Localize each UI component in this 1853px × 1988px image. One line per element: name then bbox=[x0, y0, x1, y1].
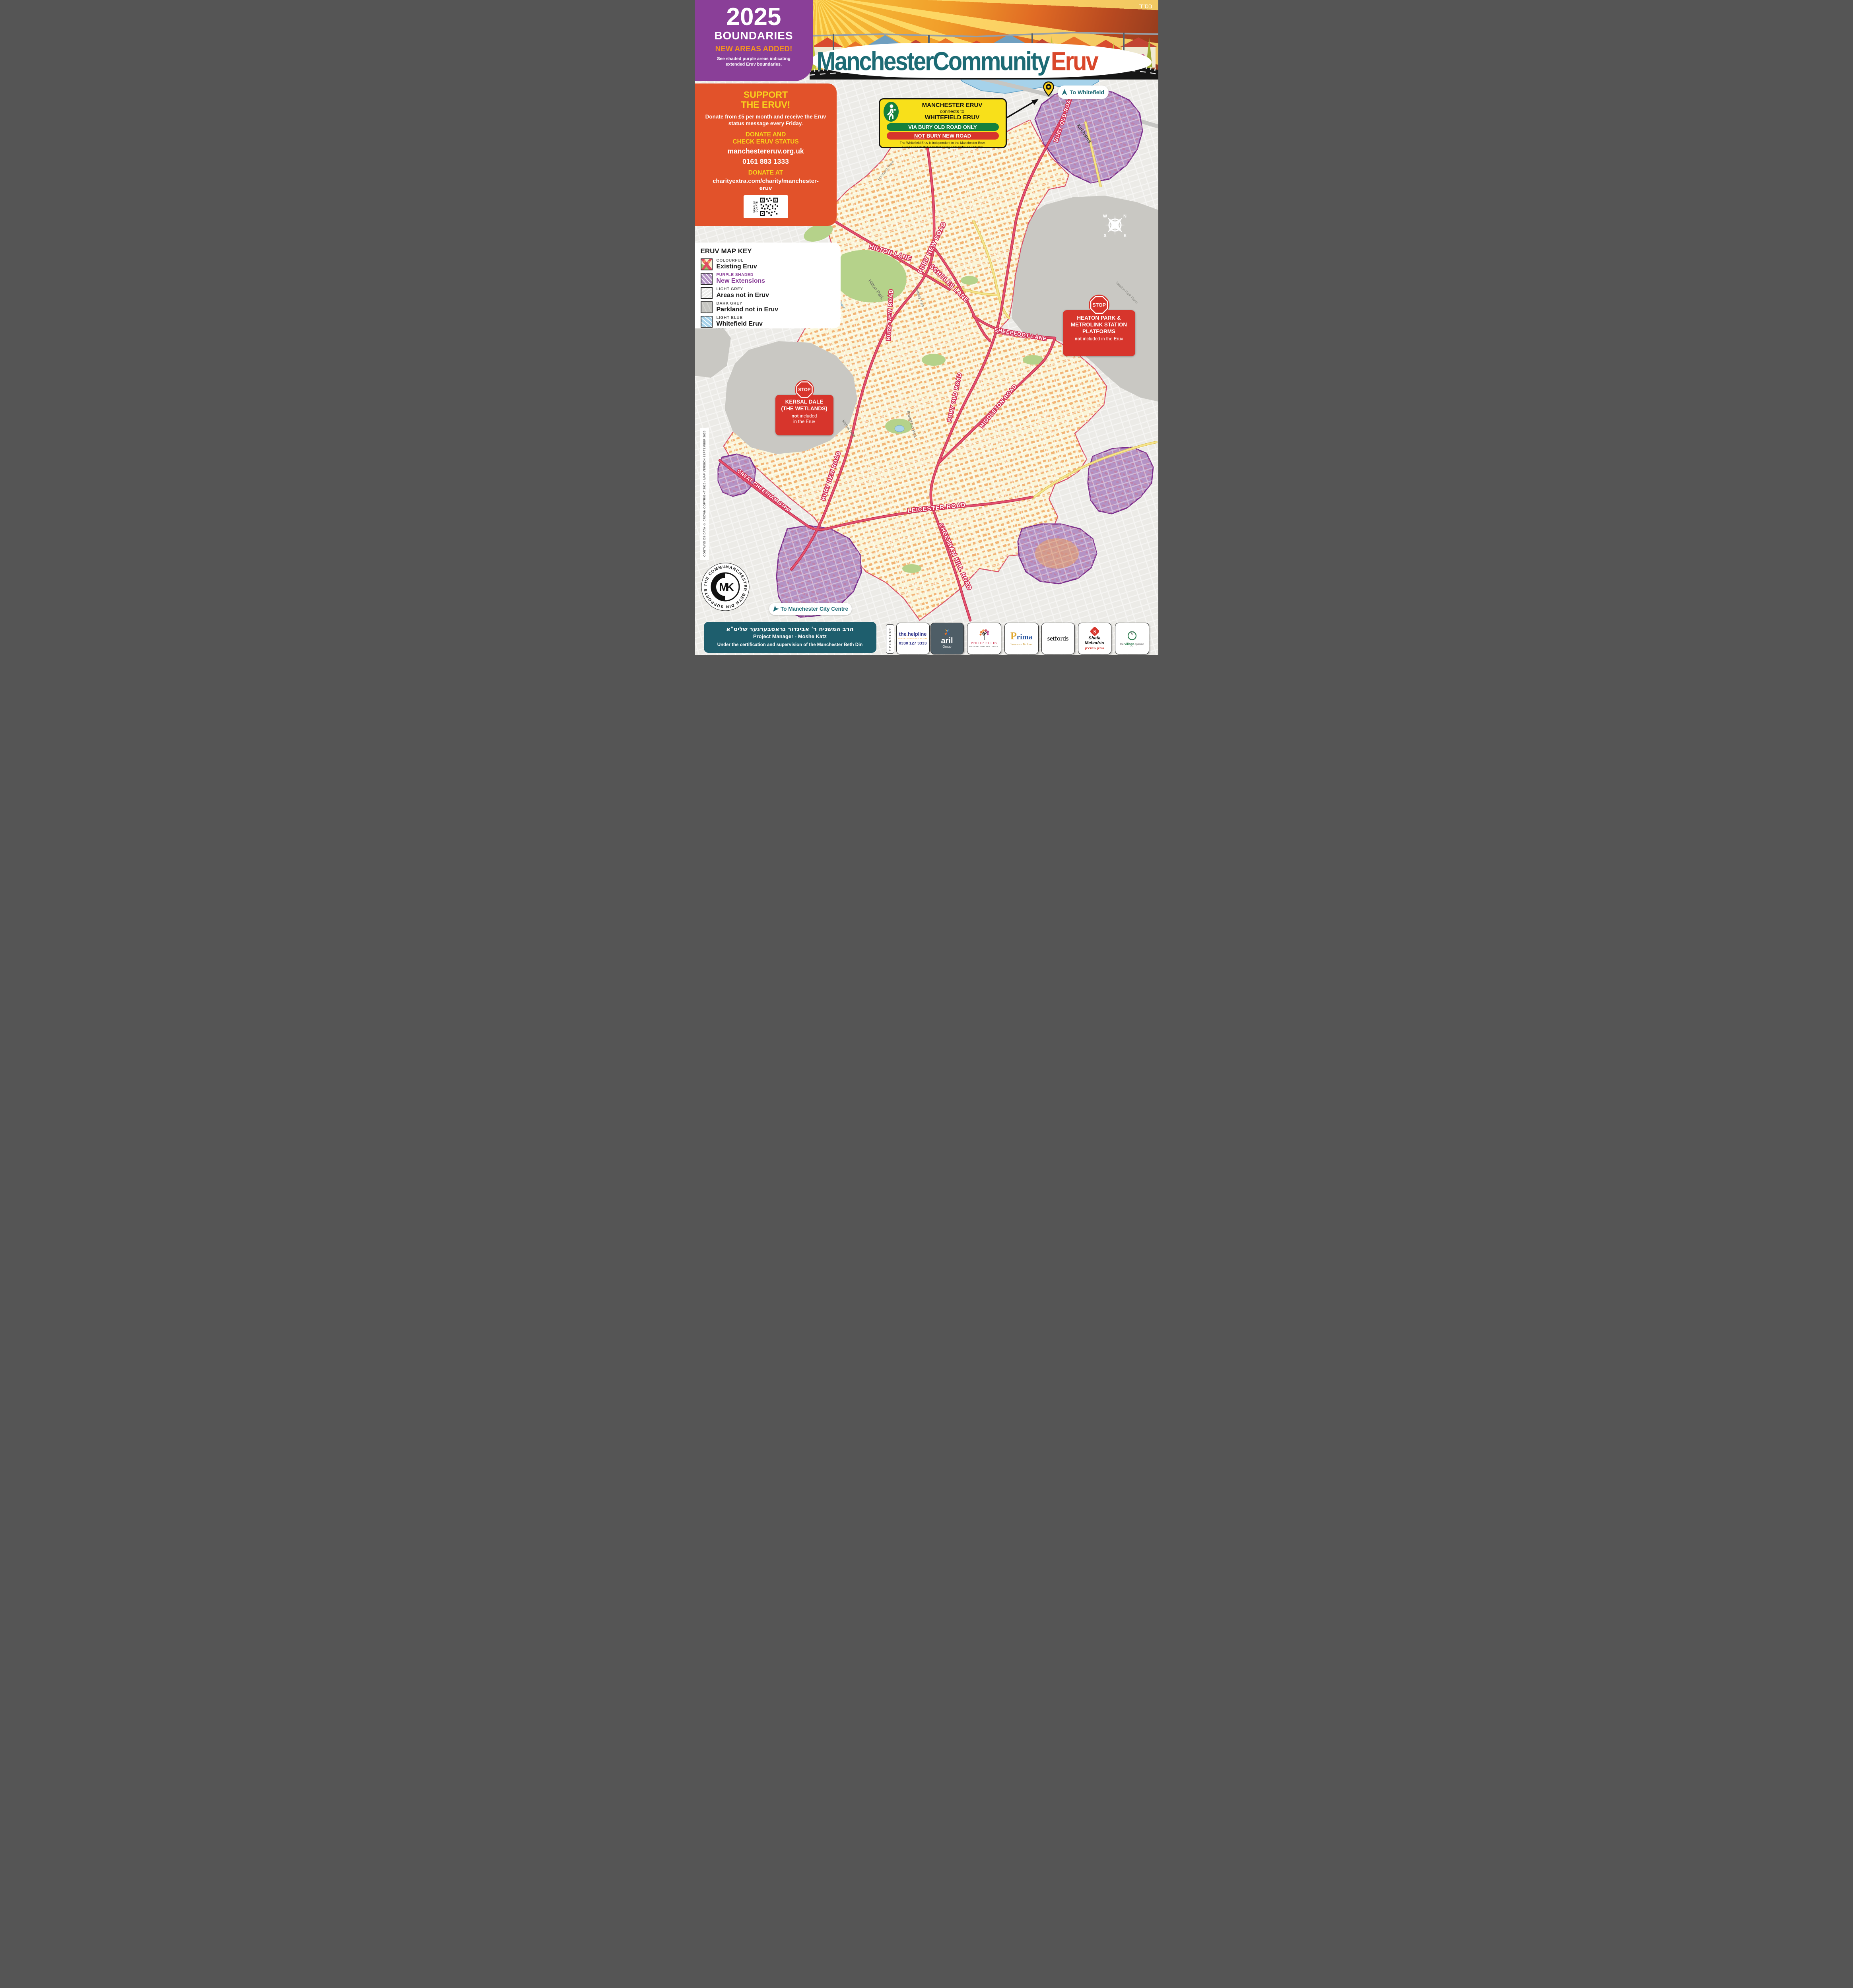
key-row-parkland: DARK GREY Parkland not in Eruv bbox=[701, 301, 835, 313]
key-row-not-in-eruv: LIGHT GREY Areas not in Eruv bbox=[701, 287, 835, 299]
sponsor-card-setfords: setfords bbox=[1041, 623, 1075, 654]
svg-text:S: S bbox=[1093, 629, 1096, 635]
connector-line3: WHITEFIELD ERUV bbox=[902, 115, 1002, 121]
connector-footnote: The Whitefield Eruv is independent to th… bbox=[883, 141, 1002, 149]
donate-heading: DONATE AND CHECK ERUV STATUS bbox=[703, 131, 829, 146]
village-optician-logo-icon: V bbox=[1126, 629, 1138, 641]
navigation-arrow-icon bbox=[1062, 89, 1067, 95]
down-left-arrow-icon bbox=[771, 605, 780, 613]
swatch-whitefield bbox=[701, 316, 713, 328]
map-key-title: ERUV MAP KEY bbox=[701, 247, 835, 255]
swatch-new-extensions bbox=[701, 273, 713, 285]
key-row-extensions: PURPLE SHADED New Extensions bbox=[701, 273, 835, 285]
donate-at-label: DONATE AT bbox=[703, 169, 829, 177]
svg-text:S: S bbox=[1103, 233, 1106, 238]
sponsors-label: SPONSORS bbox=[886, 624, 894, 654]
certification-text: Under the certification and supervision … bbox=[707, 643, 873, 647]
to-city-centre-pill: To Manchester City Centre bbox=[769, 603, 852, 615]
connector-line1: MANCHESTER ERUV bbox=[902, 102, 1002, 109]
beth-din-logo: MANCHESTER BETH DIN SUPPORTS THE COMMUNI… bbox=[701, 562, 750, 612]
bsd-text: בס"ד bbox=[1139, 3, 1153, 10]
sponsor-card-aril: aril Group bbox=[930, 623, 964, 654]
stop-icon: STOP bbox=[794, 380, 814, 400]
qr-code-card: SCAN TO DONATE bbox=[744, 195, 788, 218]
boundaries-title: BOUNDARIES bbox=[695, 29, 813, 42]
helpline-logo: the.helpline bbox=[899, 631, 926, 637]
sponsor-card-village-optician: V the Village optician Ltd bbox=[1115, 623, 1149, 654]
swatch-areas-not-in-eruv bbox=[701, 287, 713, 299]
walking-icon bbox=[883, 101, 899, 122]
sponsor-card-shefa-mehadrin: S Shefa Mehadrin שפע מהדרין bbox=[1078, 623, 1111, 654]
whitefield-connector-box: MANCHESTER ERUV connects to WHITEFIELD E… bbox=[879, 98, 1007, 148]
heaton-park-stop-box: STOP HEATON PARK & METROLINK STATION PLA… bbox=[1063, 310, 1135, 356]
qr-label: SCAN TO DONATE bbox=[754, 195, 758, 218]
new-areas-subtitle: NEW AREAS ADDED! bbox=[695, 45, 813, 54]
key-row-existing: COLOURFUL Existing Eruv bbox=[701, 258, 835, 270]
svg-text:STOP: STOP bbox=[798, 388, 811, 392]
qr-code bbox=[760, 198, 778, 216]
tree-icon bbox=[978, 629, 990, 641]
website-text: manchestereruv.org.uk bbox=[703, 147, 829, 155]
copyright-strip: CONTAINS OS DATA © CROWN COPYRIGHT 2025 … bbox=[700, 428, 709, 560]
svg-text:E: E bbox=[1123, 233, 1126, 238]
map-key-panel: ERUV MAP KEY COLOURFUL Existing Eruv PUR… bbox=[695, 243, 841, 328]
to-whitefield-pill: To Whitefield bbox=[1058, 85, 1109, 99]
swatch-existing-eruv bbox=[701, 258, 713, 270]
shefa-logo-icon: S bbox=[1090, 627, 1099, 636]
pond bbox=[895, 425, 904, 432]
not-bury-new-road-pill: NOT BURY NEW ROAD bbox=[887, 132, 999, 140]
swatch-parkland bbox=[701, 301, 713, 313]
boundaries-box: 2025 BOUNDARIES NEW AREAS ADDED! See sha… bbox=[695, 0, 813, 81]
village-optician-name: the Village optician bbox=[1120, 642, 1144, 646]
via-bury-old-road-pill: VIA BURY OLD ROAD ONLY bbox=[887, 123, 999, 131]
support-title: SUPPORT THE ERUV! bbox=[703, 90, 829, 110]
boundaries-year: 2025 bbox=[695, 5, 813, 29]
key-row-whitefield: LIGHT BLUE Whitefield Eruv bbox=[701, 316, 835, 328]
kersal-dale-stop-box: STOP KERSAL DALE (THE WETLANDS) not incl… bbox=[775, 395, 833, 435]
sponsor-card-philip-ellis: PHILIP ELLIS ESTATE AND LETTINGS bbox=[967, 623, 1001, 654]
connector-line2: connects to bbox=[902, 109, 1002, 114]
header-banner: ManchesterCommunityEruv בס"ד bbox=[810, 0, 1158, 80]
prima-logo: Prima bbox=[1010, 631, 1032, 641]
stop-icon: STOP bbox=[1088, 294, 1110, 316]
svg-text:V: V bbox=[1130, 630, 1134, 637]
aril-logo-icon bbox=[943, 629, 952, 637]
support-box: SUPPORT THE ERUV! Donate from £5 per mon… bbox=[695, 83, 837, 226]
eruv-map-poster: BURY OLD ROAD HILTON LANE BURY NEW ROAD … bbox=[695, 0, 1158, 655]
hebrew-supervisor-text: הרב המשגיח ר' אביגדור גראסבערגער שליט"א bbox=[707, 625, 873, 633]
project-manager-text: Project Manager - Moshe Katz bbox=[707, 633, 873, 639]
donate-url-text: charityextra.com/charity/manchester-eruv bbox=[712, 178, 820, 192]
sponsor-card-helpline: the.helpline NEVER STRUGGLE ALONE 0330 1… bbox=[896, 623, 930, 654]
sponsor-card-prima: Prima Insurance Brokers bbox=[1004, 623, 1039, 654]
support-body: Donate from £5 per month and receive the… bbox=[703, 113, 829, 127]
poster-title: ManchesterCommunityEruv bbox=[817, 46, 1153, 76]
svg-text:N: N bbox=[1123, 214, 1127, 219]
boundaries-description: See shaded purple areas indicating exten… bbox=[695, 56, 813, 68]
phone-text: 0161 883 1333 bbox=[703, 157, 829, 166]
svg-text:STOP: STOP bbox=[1092, 303, 1106, 308]
certification-panel: הרב המשגיח ר' אביגדור גראסבערגער שליט"א … bbox=[704, 622, 876, 653]
svg-text:W: W bbox=[1103, 214, 1107, 219]
